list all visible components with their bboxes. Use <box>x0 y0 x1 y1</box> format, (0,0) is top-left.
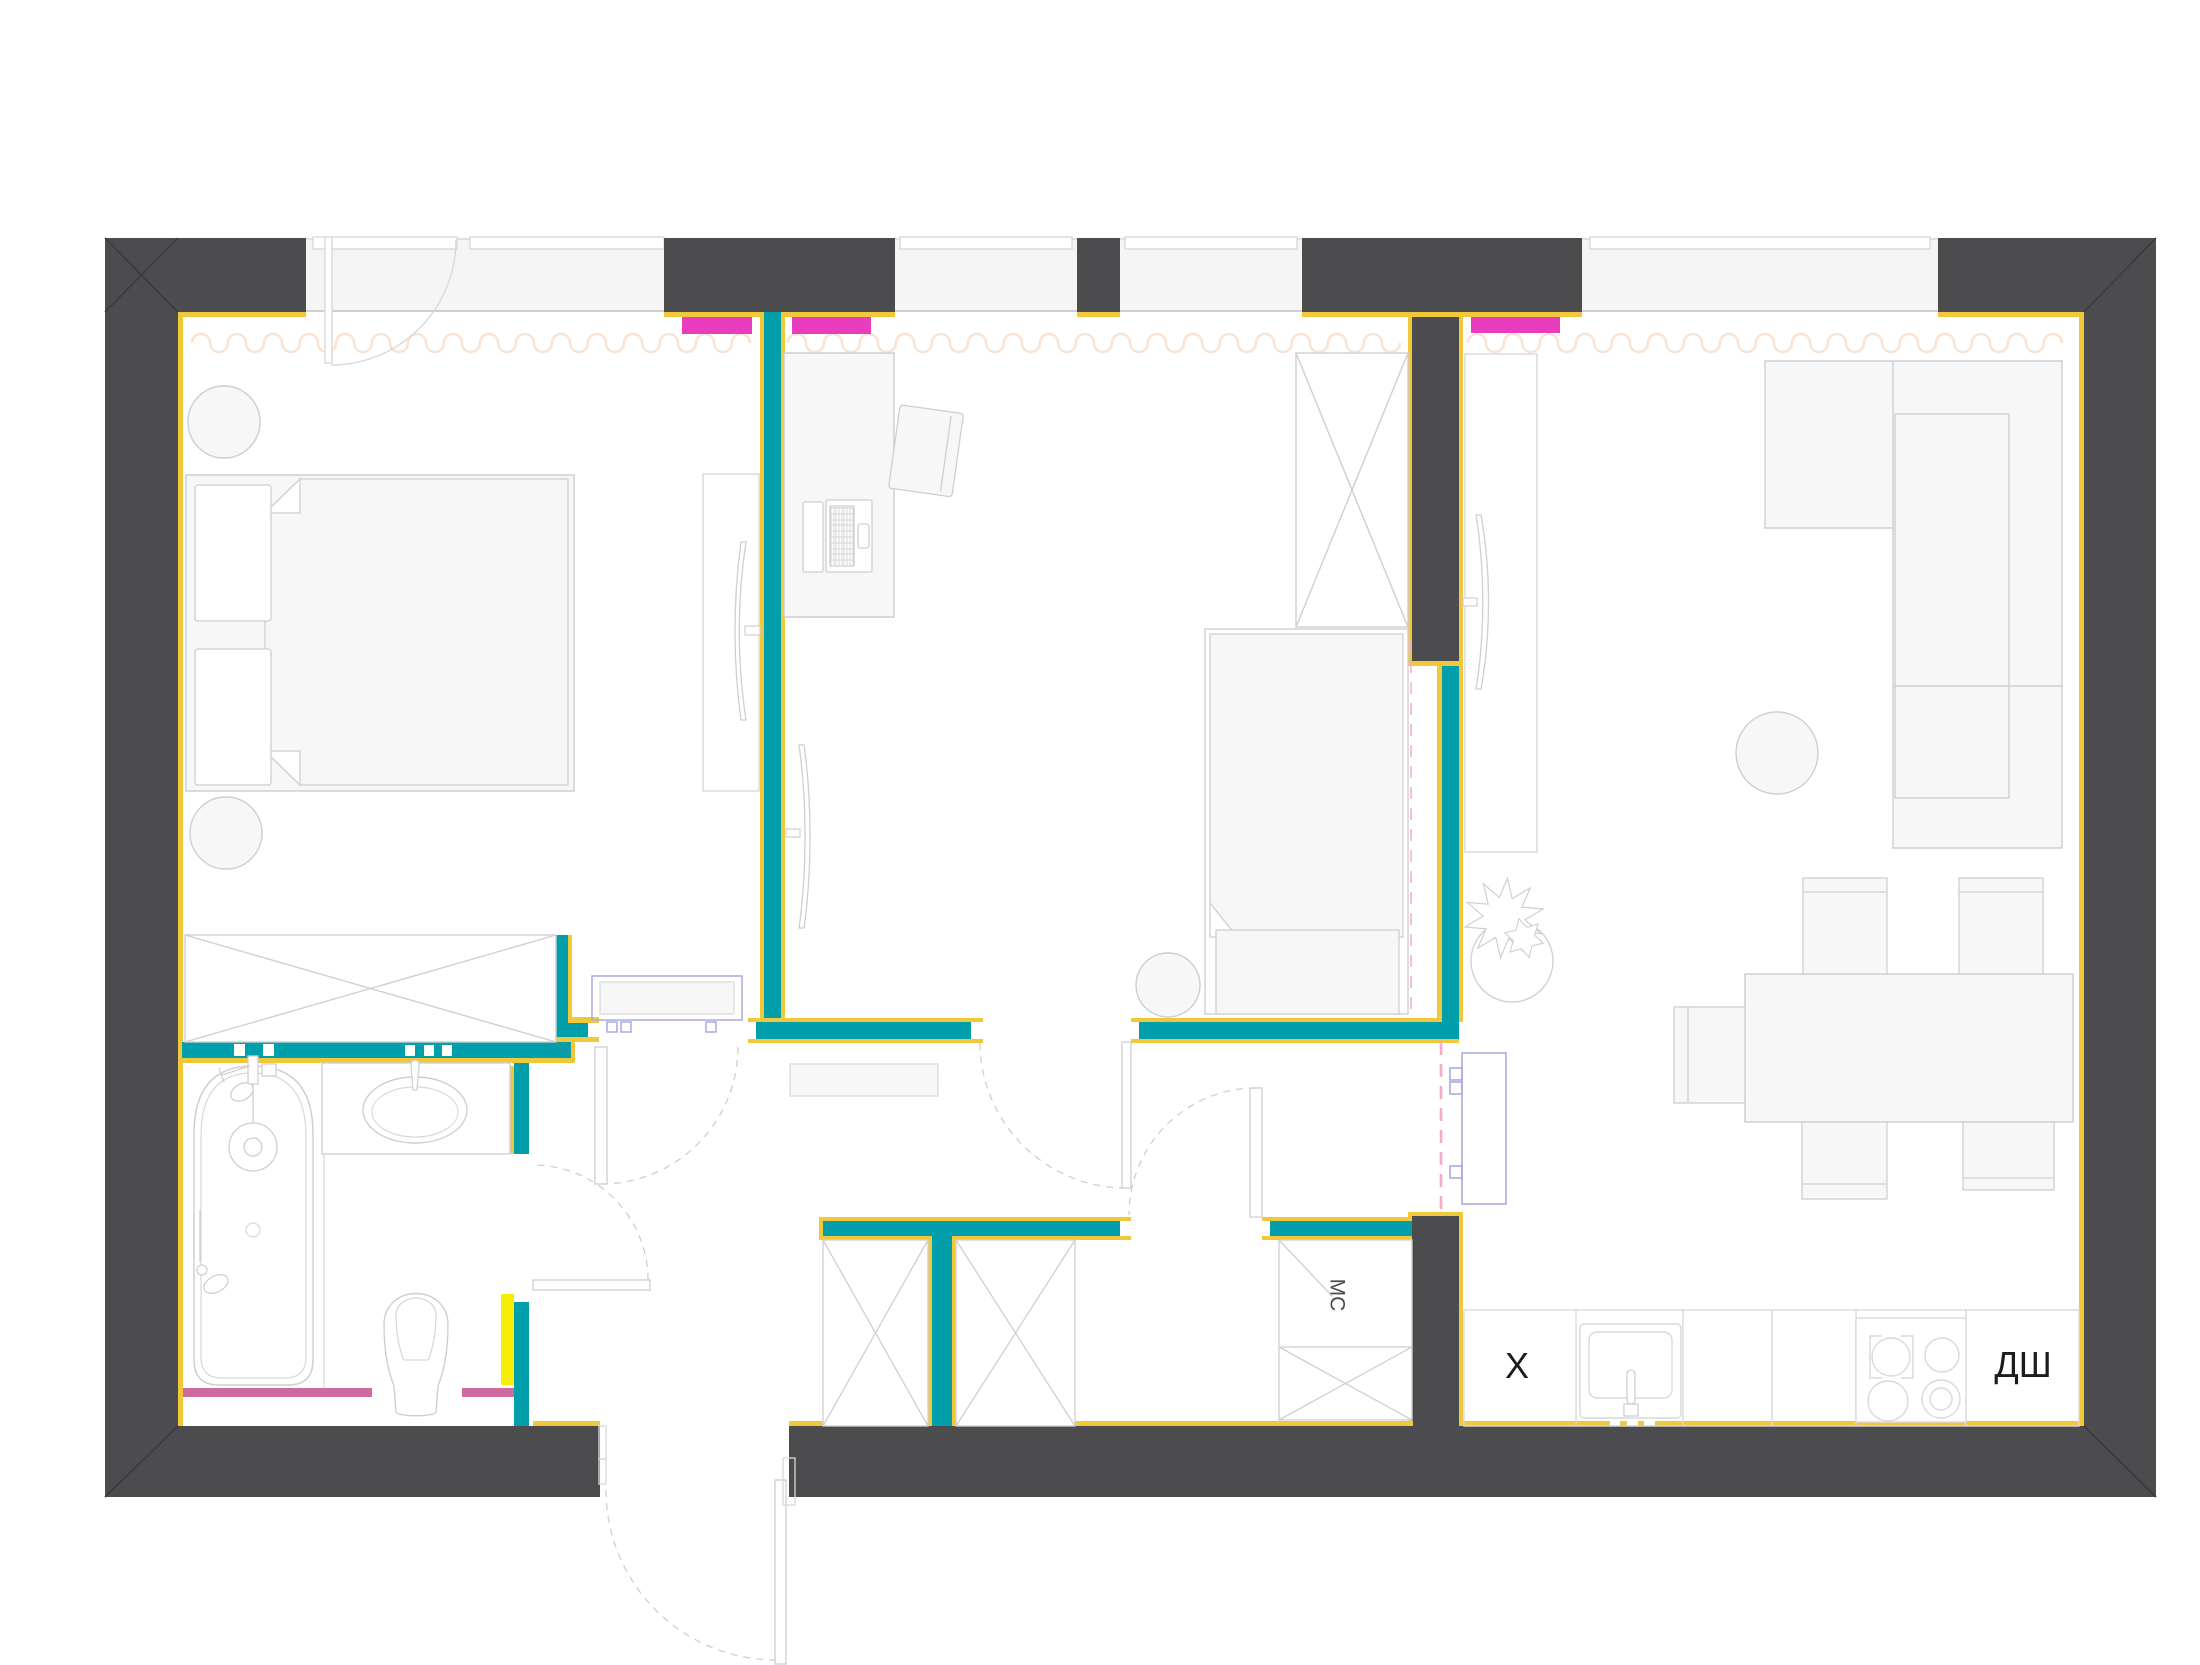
svg-text:ДШ: ДШ <box>1994 1344 2051 1385</box>
svg-text:МС: МС <box>1325 1279 1348 1312</box>
svg-text:Х: Х <box>1505 1345 1529 1386</box>
